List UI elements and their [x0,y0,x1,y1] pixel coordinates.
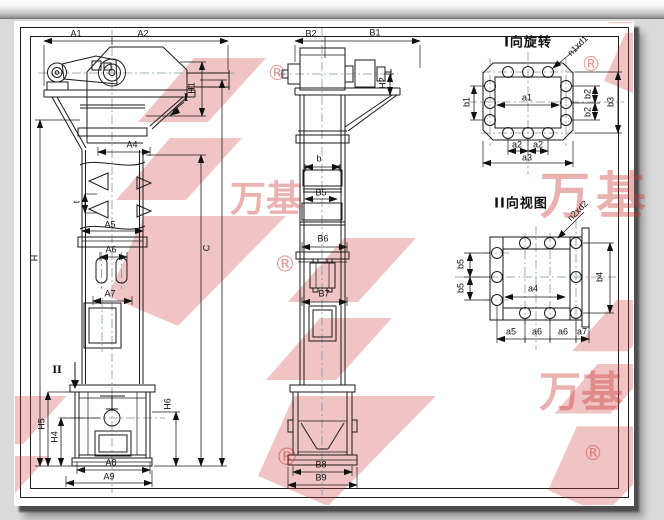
dim-label-b5-upper: b5 [457,259,466,269]
dim-label-b2-lower: b2 [584,107,593,117]
screenshot-canvas: A1 A2 H1 I A4 t A5 A6 A7 H C II H5 H4 H6… [0,0,664,520]
dim-label-A5: A5 [104,221,115,230]
dim-label-B6: B6 [317,235,328,244]
dim-label-A4: A4 [126,141,137,150]
dim-label-A6: A6 [105,246,116,255]
dim-label-H6: H6 [164,398,173,410]
dim-label-b1: b1 [463,97,472,107]
dim-label-A8: A8 [105,459,116,468]
dim-label-A1: A1 [70,30,81,39]
view-II-title: II向视图 [494,198,548,211]
dim-label-A9: A9 [103,473,114,482]
dim-label-C: C [203,245,212,252]
dim-label-b2-upper: b2 [584,89,593,99]
registered-mark-3: ® [275,443,299,471]
dim-label-H2: H2 [379,77,388,89]
dim-label-b5-lower: b5 [457,283,466,293]
view-marker-II: II [52,366,61,376]
dim-label-a4: a4 [528,285,538,294]
view-I-title: I向旋转 [504,37,552,50]
dim-label-B5: B5 [315,189,326,198]
dim-label-a1: a1 [522,94,532,103]
dim-label-H4: H4 [51,431,60,443]
dim-label-A2: A2 [137,30,148,39]
watermark-brand-2: 万基 [540,156,652,228]
registered-mark-1: ® [267,61,287,85]
dim-label-A7: A7 [104,290,115,299]
dim-label-B8: B8 [315,461,326,470]
dim-label-B2: B2 [305,30,316,39]
dim-label-a6-right: a6 [558,328,568,337]
watermark-brand-1: 万基 [230,170,302,222]
dim-label-t: t [73,201,82,204]
dim-label-a6-left: a6 [532,328,542,337]
registered-mark-5: ® [581,52,601,76]
dim-label-H5: H5 [38,418,47,430]
dim-label-a3: a3 [522,154,532,163]
registered-mark-2: ® [274,253,296,278]
registered-mark-4: ® [583,441,603,465]
dim-label-a5: a5 [506,328,516,337]
view-marker-I: I [184,94,189,104]
drawing-linework [0,0,664,520]
dim-label-H: H [31,255,40,262]
dim-label-a2-right: a2 [533,141,543,150]
dim-label-b: b [316,155,321,164]
watermark-brand-3: 万基 [539,359,623,420]
dim-label-B9: B9 [315,474,326,483]
dim-label-a7: a7 [577,328,587,337]
dim-label-B1: B1 [369,29,380,38]
dim-label-b4: b4 [596,272,605,282]
dim-label-H1: H1 [188,82,197,94]
dim-label-B7: B7 [318,290,329,299]
dim-label-a2-left: a2 [512,141,522,150]
dim-label-b3: b3 [607,97,616,107]
